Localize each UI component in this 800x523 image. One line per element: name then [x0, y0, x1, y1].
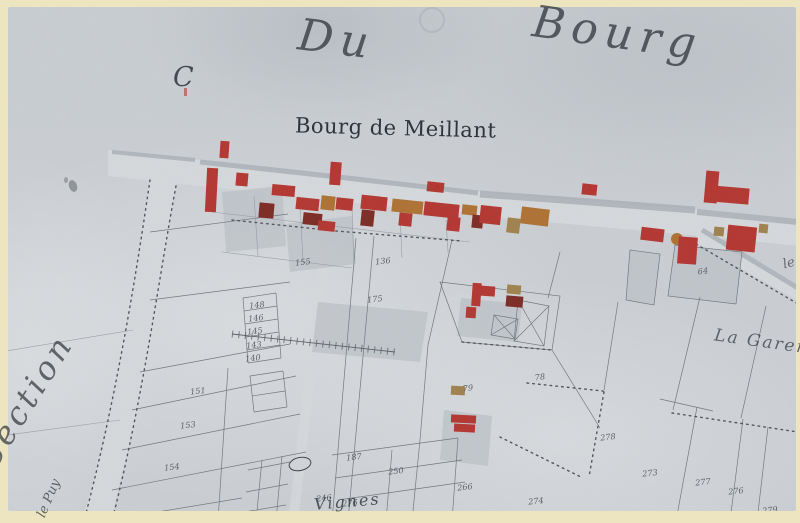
cadastral-map-scan: 1481461451431401511531541551361751872502… — [0, 0, 800, 523]
map-drawing — [8, 7, 796, 511]
paper-grain — [8, 7, 796, 511]
map-paper: 1481461451431401511531541551361751872502… — [8, 7, 796, 511]
